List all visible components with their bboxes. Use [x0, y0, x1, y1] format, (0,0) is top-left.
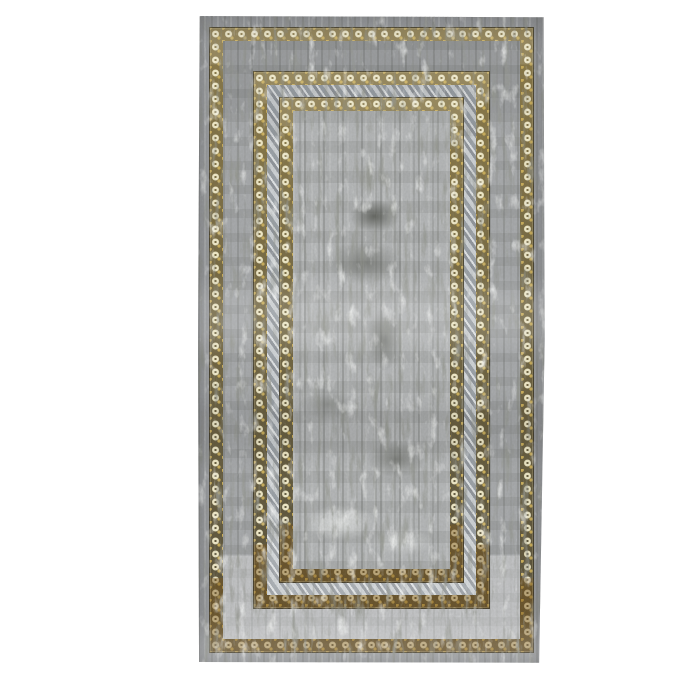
- product-photo-canvas: [0, 0, 700, 700]
- gold-scroll-border-inner: [279, 97, 464, 583]
- rug-image: [198, 16, 545, 664]
- rug-fringe-top: [204, 13, 539, 17]
- gold-scroll-border-middle: [253, 71, 490, 609]
- diagonal-ribbon-band: [267, 85, 476, 595]
- rug-fringe-bottom: [204, 663, 539, 667]
- rug-center-field: [293, 111, 450, 569]
- gold-scroll-border-outer: [209, 27, 534, 653]
- plain-grey-band: [223, 41, 520, 639]
